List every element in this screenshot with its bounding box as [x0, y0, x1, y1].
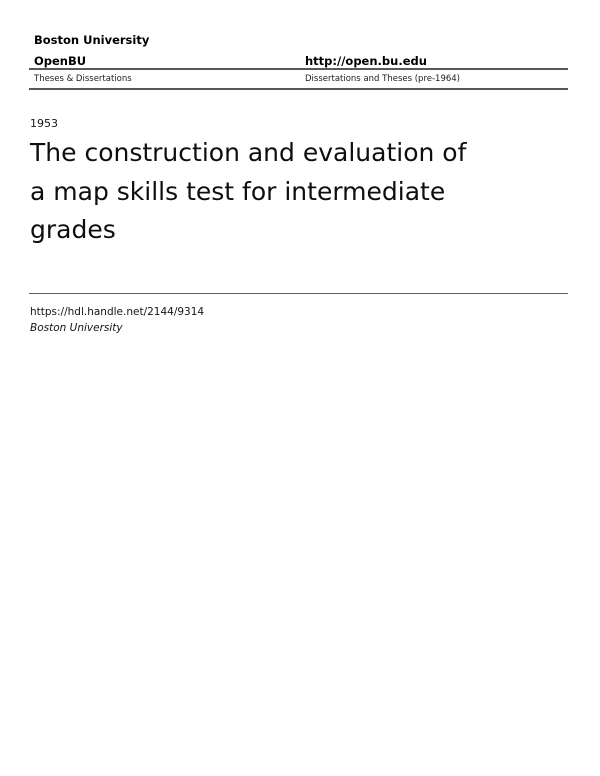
institution-name: Boston University — [34, 33, 149, 47]
title-line: grades — [30, 211, 575, 250]
title-line: a map skills test for intermediate — [30, 173, 575, 212]
footer-rule — [29, 293, 568, 294]
repository-name: OpenBU — [34, 54, 86, 68]
publication-year: 1953 — [30, 117, 58, 130]
collection-series: Dissertations and Theses (pre-1964) — [305, 74, 460, 84]
repository-url-link[interactable]: http://open.bu.edu — [305, 54, 427, 68]
pdf-cover-page: Boston University OpenBU http://open.bu.… — [0, 0, 600, 776]
handle-url-link[interactable]: https://hdl.handle.net/2144/9314 — [30, 306, 204, 318]
collection-name: Theses & Dissertations — [34, 74, 132, 84]
header-rule-bottom — [29, 88, 568, 90]
publisher-name: Boston University — [30, 322, 123, 334]
title-line: The construction and evaluation of — [30, 134, 575, 173]
document-title: The construction and evaluation of a map… — [30, 134, 575, 250]
header-rule-top — [29, 68, 568, 70]
